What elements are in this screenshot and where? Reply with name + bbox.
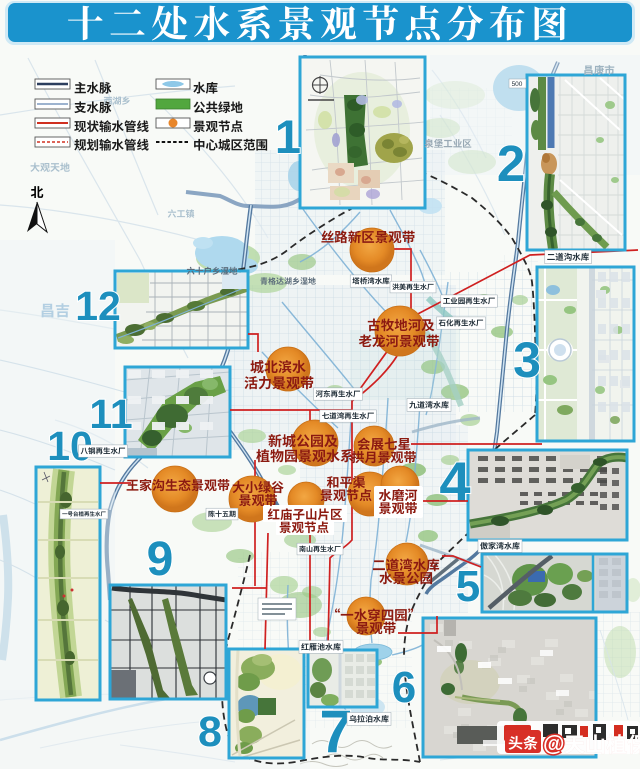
svg-text:1: 1 <box>275 110 301 163</box>
svg-text:8: 8 <box>198 708 222 756</box>
svg-text:@: @ <box>543 731 564 756</box>
svg-text:4: 4 <box>439 450 470 513</box>
svg-text:500: 500 <box>512 81 523 88</box>
svg-text:11: 11 <box>89 391 132 437</box>
svg-text:5: 5 <box>456 562 480 611</box>
svg-text:3: 3 <box>513 332 541 388</box>
svg-text:7: 7 <box>319 698 352 765</box>
svg-text:2: 2 <box>497 135 525 192</box>
svg-text:6: 6 <box>392 663 416 712</box>
svg-text:9: 9 <box>147 533 174 586</box>
svg-text:12: 12 <box>75 283 121 329</box>
